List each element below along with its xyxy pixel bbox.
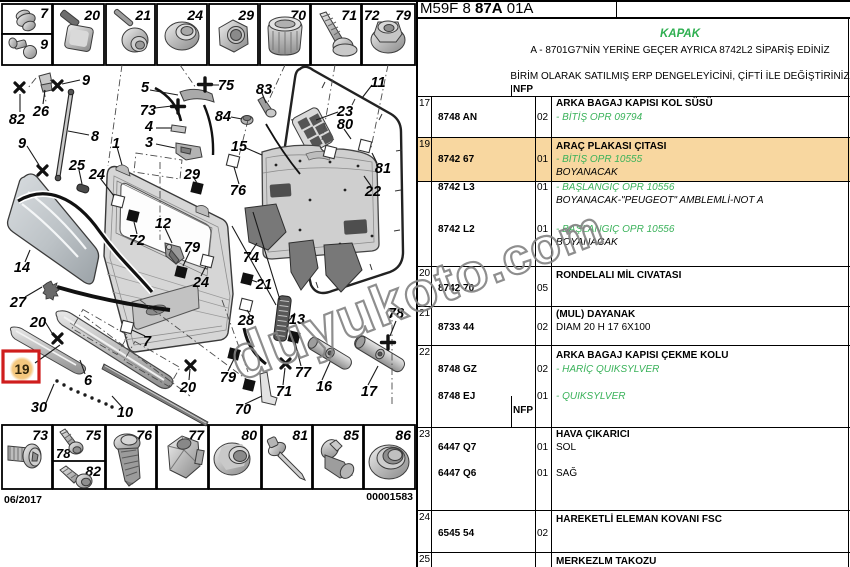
svg-text:20: 20 xyxy=(29,315,46,331)
svg-text:u: u xyxy=(257,302,316,379)
svg-text:19: 19 xyxy=(14,362,29,377)
svg-text:70: 70 xyxy=(235,402,251,418)
svg-text:06/2017: 06/2017 xyxy=(4,494,42,506)
svg-text:77: 77 xyxy=(295,365,312,381)
svg-text:16: 16 xyxy=(316,379,333,395)
svg-text:5: 5 xyxy=(141,80,150,96)
svg-text:k: k xyxy=(361,268,414,339)
svg-text:3: 3 xyxy=(145,135,153,151)
svg-text:17: 17 xyxy=(361,384,378,400)
svg-text:82: 82 xyxy=(85,463,101,479)
svg-text:71: 71 xyxy=(341,7,357,23)
svg-text:9: 9 xyxy=(18,136,26,152)
svg-text:1: 1 xyxy=(112,136,120,152)
svg-text:82: 82 xyxy=(9,112,25,128)
svg-text:76: 76 xyxy=(136,427,152,443)
svg-text:81: 81 xyxy=(375,161,391,177)
svg-text:24: 24 xyxy=(192,275,209,291)
svg-text:13: 13 xyxy=(289,312,305,328)
svg-text:9: 9 xyxy=(40,36,48,52)
svg-text:00001583: 00001583 xyxy=(366,491,413,503)
svg-text:6: 6 xyxy=(84,373,93,389)
svg-text:73: 73 xyxy=(140,103,156,119)
svg-text:21: 21 xyxy=(134,7,151,23)
svg-text:7: 7 xyxy=(40,5,49,21)
svg-text:23: 23 xyxy=(336,104,353,120)
svg-text:72: 72 xyxy=(364,7,380,23)
svg-text:4: 4 xyxy=(144,119,153,135)
svg-text:70: 70 xyxy=(290,7,306,23)
svg-text:28: 28 xyxy=(237,313,255,329)
svg-text:72: 72 xyxy=(129,233,145,249)
svg-text:11: 11 xyxy=(370,75,385,91)
svg-text:20: 20 xyxy=(179,380,196,396)
svg-text:74: 74 xyxy=(243,250,259,266)
svg-text:86: 86 xyxy=(395,427,411,443)
svg-text:o: o xyxy=(445,240,496,307)
svg-text:75: 75 xyxy=(218,78,235,94)
svg-text:85: 85 xyxy=(343,427,359,443)
svg-text:83: 83 xyxy=(256,82,272,98)
svg-text:73: 73 xyxy=(32,427,48,443)
svg-text:14: 14 xyxy=(14,260,30,276)
svg-text:d: d xyxy=(220,316,280,394)
svg-text:25: 25 xyxy=(68,158,86,174)
svg-text:71: 71 xyxy=(276,384,292,400)
svg-text:80: 80 xyxy=(241,427,257,443)
svg-text:c: c xyxy=(492,225,539,288)
svg-text:75: 75 xyxy=(85,427,101,443)
svg-text:.: . xyxy=(477,235,511,294)
svg-text:78: 78 xyxy=(56,446,71,461)
svg-text:24: 24 xyxy=(88,167,105,183)
svg-text:15: 15 xyxy=(231,139,248,155)
svg-text:20: 20 xyxy=(83,7,100,23)
svg-text:76: 76 xyxy=(230,183,247,199)
svg-text:77: 77 xyxy=(188,427,205,443)
svg-text:30: 30 xyxy=(31,400,47,416)
svg-text:10: 10 xyxy=(117,405,133,421)
svg-text:80: 80 xyxy=(337,117,353,133)
svg-text:79: 79 xyxy=(184,240,200,256)
svg-text:y: y xyxy=(293,291,348,365)
svg-text:12: 12 xyxy=(155,216,171,232)
svg-text:22: 22 xyxy=(364,184,381,200)
svg-text:84: 84 xyxy=(215,109,231,125)
svg-text:21: 21 xyxy=(255,277,272,293)
svg-text:29: 29 xyxy=(237,7,254,23)
svg-text:u: u xyxy=(326,279,382,352)
svg-text:26: 26 xyxy=(32,104,50,120)
svg-text:79: 79 xyxy=(395,7,411,23)
svg-text:81: 81 xyxy=(292,427,308,443)
svg-text:7: 7 xyxy=(143,334,152,350)
svg-text:79: 79 xyxy=(220,370,236,386)
svg-text:27: 27 xyxy=(9,295,27,311)
svg-text:9: 9 xyxy=(82,73,90,89)
svg-text:29: 29 xyxy=(183,167,200,183)
svg-text:8: 8 xyxy=(91,129,100,145)
svg-text:78: 78 xyxy=(388,306,405,322)
svg-text:24: 24 xyxy=(186,7,203,23)
